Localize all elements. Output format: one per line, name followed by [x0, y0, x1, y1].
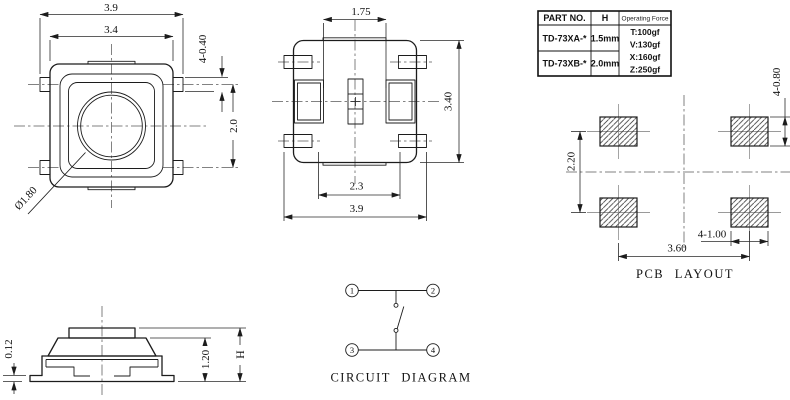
table-cell-force: T:100gf — [630, 27, 659, 37]
top-view: 3.9 3.4 4-0.40 2.0 Ø1.80 — [12, 2, 240, 214]
dim-label-body-width: 3.4 — [104, 24, 118, 36]
table-cell-force: V:130gf — [630, 40, 660, 50]
circuit-diagram-caption: CIRCUIT DIAGRAM — [330, 371, 471, 385]
dim-label-standoff: 0.12 — [3, 339, 15, 358]
dim-label-row-pitch: 2.20 — [565, 151, 577, 171]
dim-label-pad-width: 4-1.00 — [698, 229, 727, 241]
table-header-h: H — [602, 13, 609, 23]
dim-label-base-height: 1.20 — [200, 349, 212, 369]
dim-label-total-height: H — [233, 350, 247, 359]
table-cell-h: 2.0mm — [591, 59, 620, 69]
table-cell-part-no: TD-73XB-* — [542, 59, 587, 69]
table-cell-force: X:160gf — [630, 52, 661, 62]
dim-label-stem-diameter: Ø1.80 — [12, 184, 40, 212]
dim-label-lead-width: 4-0.40 — [197, 34, 209, 63]
switch-contact — [394, 328, 398, 332]
dim-label-lead-span: 2.0 — [228, 119, 240, 133]
dim-label-stem-width: 1.75 — [351, 6, 371, 18]
circuit-diagram: 1 2 3 4 CIRCUIT DIAGRAM — [330, 284, 471, 384]
pcb-layout-caption: PCB LAYOUT — [636, 267, 734, 281]
table-cell-force: Z:250gf — [630, 65, 660, 75]
table-cell-part-no: TD-73XA-* — [542, 34, 587, 44]
table-cell-h: 1.5mm — [591, 34, 620, 44]
terminal-number: 2 — [431, 286, 435, 296]
terminal-number: 3 — [350, 345, 354, 355]
dim-label-body-height: 3.40 — [442, 91, 454, 111]
spec-table: PART NO. H Operating Force TD-73XA-* 1.5… — [538, 11, 671, 76]
dim-label-col-pitch: 3.60 — [667, 243, 687, 255]
bottom-rib — [323, 163, 386, 166]
dim-label-overall-width: 3.9 — [350, 203, 364, 215]
technical-drawing-sheet: 3.9 3.4 4-0.40 2.0 Ø1.80 — [0, 0, 790, 400]
top-rib — [323, 38, 386, 41]
top-tab — [88, 61, 135, 64]
terminal-number: 1 — [350, 286, 354, 296]
solder-pad — [600, 198, 637, 227]
side-view: 0.12 1.20 H — [3, 306, 247, 397]
switch-contact — [394, 303, 398, 307]
dim-label-inner-span: 2.3 — [350, 181, 364, 193]
table-header-part-no: PART NO. — [543, 13, 585, 23]
bottom-view: 1.75 3.40 2.3 3.9 — [272, 6, 464, 221]
inner-step — [46, 367, 90, 376]
diameter-leader-line — [28, 153, 86, 215]
terminal-number: 4 — [431, 345, 436, 355]
dim-label-overall-width: 3.9 — [104, 2, 118, 14]
solder-pad — [731, 198, 768, 227]
dim-label-pad-height: 4-0.80 — [771, 67, 783, 96]
table-header-operating-force: Operating Force — [622, 16, 669, 23]
inner-step — [114, 367, 158, 376]
solder-pad — [600, 117, 637, 146]
switch-lever — [397, 307, 404, 329]
drawing-canvas: 3.9 3.4 4-0.40 2.0 Ø1.80 — [0, 0, 790, 400]
pcb-layout: 4-0.80 2.20 4-1.00 3.60 PCB LAYOUT — [565, 67, 790, 281]
solder-pad — [731, 117, 768, 146]
